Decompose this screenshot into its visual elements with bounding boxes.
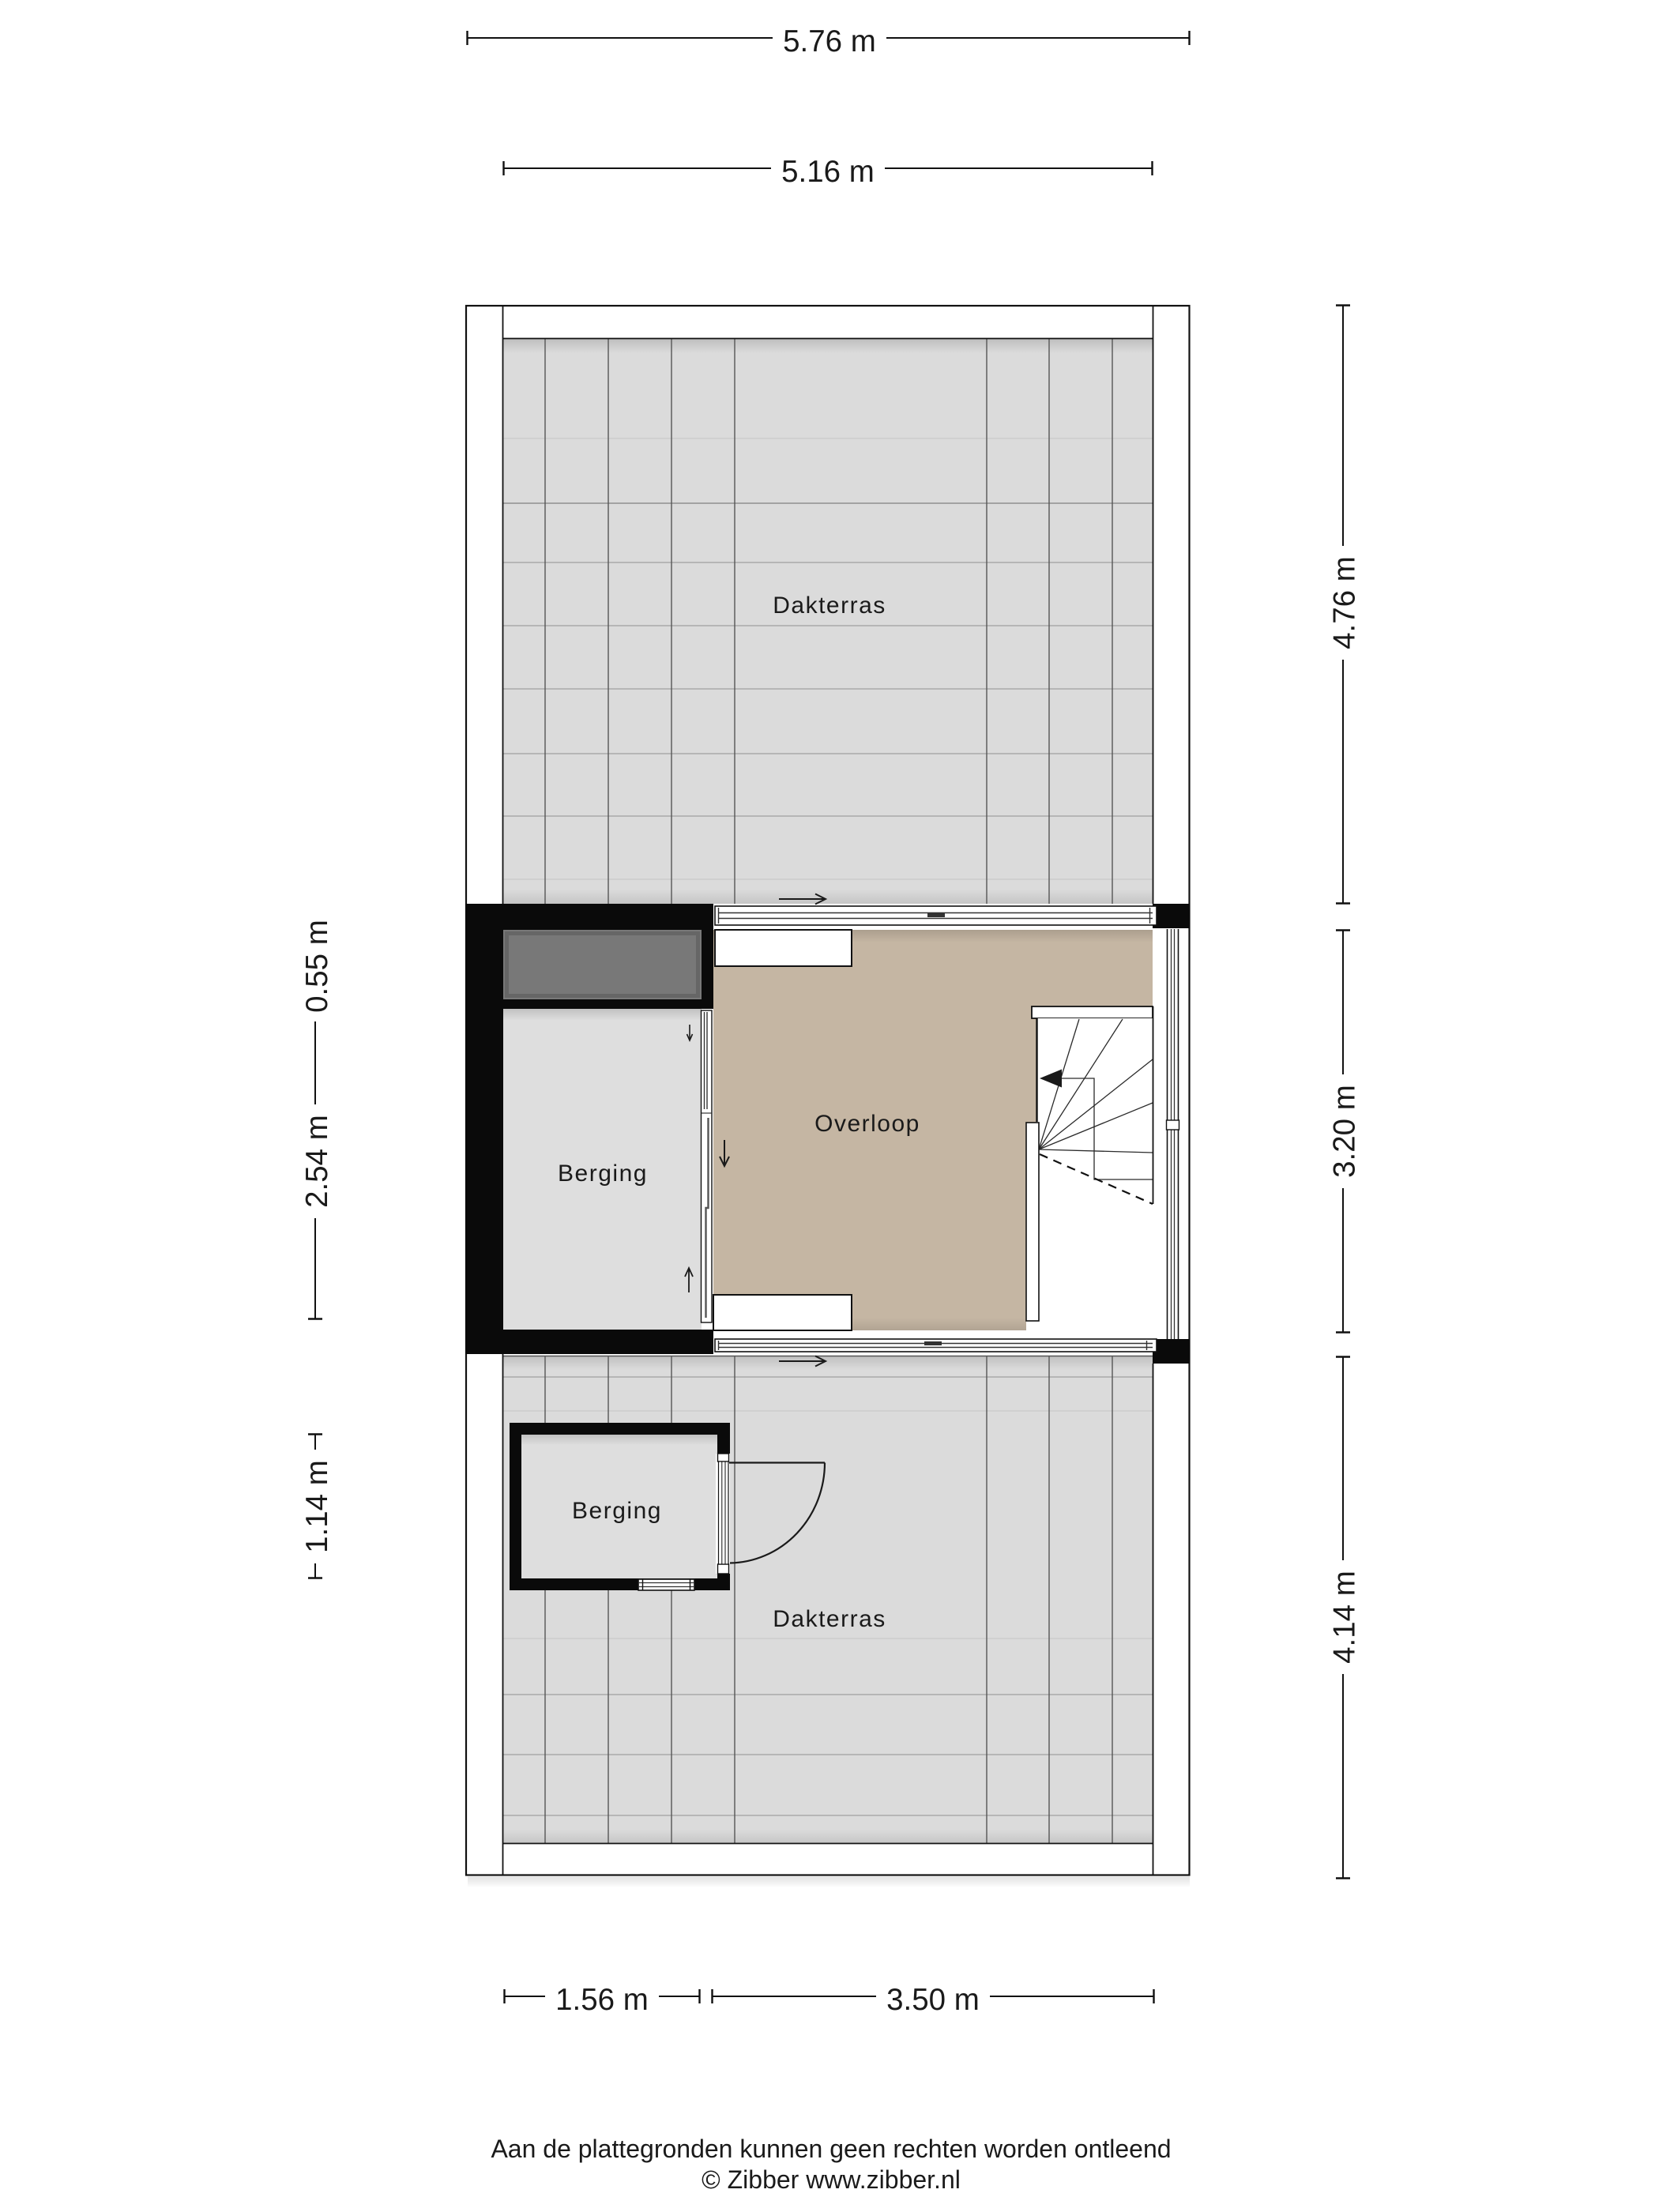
svg-text:Berging: Berging xyxy=(558,1161,648,1187)
svg-text:Overloop: Overloop xyxy=(814,1111,920,1137)
svg-text:Dakterras: Dakterras xyxy=(773,592,886,619)
svg-text:0.55 m: 0.55 m xyxy=(300,920,334,1013)
svg-text:4.14 m: 4.14 m xyxy=(1328,1571,1362,1664)
svg-text:© Zibber www.zibber.nl: © Zibber www.zibber.nl xyxy=(702,2165,961,2194)
svg-text:2.54 m: 2.54 m xyxy=(300,1115,334,1208)
svg-text:3.50 m: 3.50 m xyxy=(886,1983,980,2017)
svg-text:5.16 m: 5.16 m xyxy=(781,155,875,189)
svg-text:3.20 m: 3.20 m xyxy=(1328,1085,1362,1178)
svg-text:Aan de plattegronden kunnen ge: Aan de plattegronden kunnen geen rechten… xyxy=(491,2135,1171,2163)
svg-text:5.76 m: 5.76 m xyxy=(783,24,876,58)
svg-text:4.76 m: 4.76 m xyxy=(1328,556,1362,649)
svg-text:1.56 m: 1.56 m xyxy=(555,1983,649,2017)
svg-text:Berging: Berging xyxy=(572,1498,662,1524)
svg-text:Dakterras: Dakterras xyxy=(773,1606,886,1632)
svg-text:1.14 m: 1.14 m xyxy=(300,1460,334,1553)
